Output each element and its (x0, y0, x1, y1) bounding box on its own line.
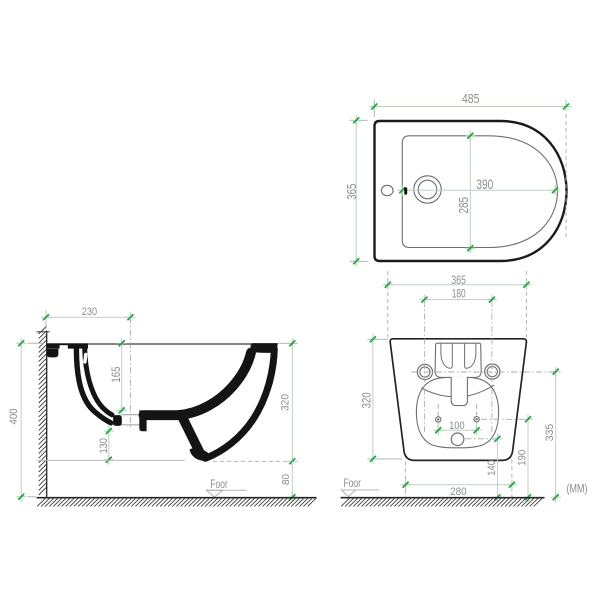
svg-text:190: 190 (516, 450, 528, 466)
svg-text:165: 165 (109, 366, 123, 382)
svg-text:140: 140 (486, 460, 498, 476)
svg-text:280: 280 (450, 486, 467, 498)
svg-text:130: 130 (98, 438, 110, 454)
svg-text:(MM): (MM) (567, 483, 588, 495)
svg-text:365: 365 (451, 275, 466, 287)
svg-text:180: 180 (452, 289, 466, 301)
svg-text:320: 320 (361, 392, 373, 408)
svg-text:80: 80 (280, 474, 292, 485)
svg-text:390: 390 (476, 177, 493, 192)
svg-text:320: 320 (280, 394, 292, 411)
svg-text:Foor: Foor (210, 479, 228, 491)
svg-text:365: 365 (344, 184, 359, 200)
svg-text:335: 335 (544, 424, 556, 442)
svg-text:400: 400 (8, 409, 20, 425)
svg-text:485: 485 (462, 91, 480, 106)
svg-text:230: 230 (82, 306, 97, 318)
svg-text:Foor: Foor (344, 478, 362, 490)
svg-text:100: 100 (449, 420, 465, 432)
svg-text:285: 285 (456, 197, 471, 214)
